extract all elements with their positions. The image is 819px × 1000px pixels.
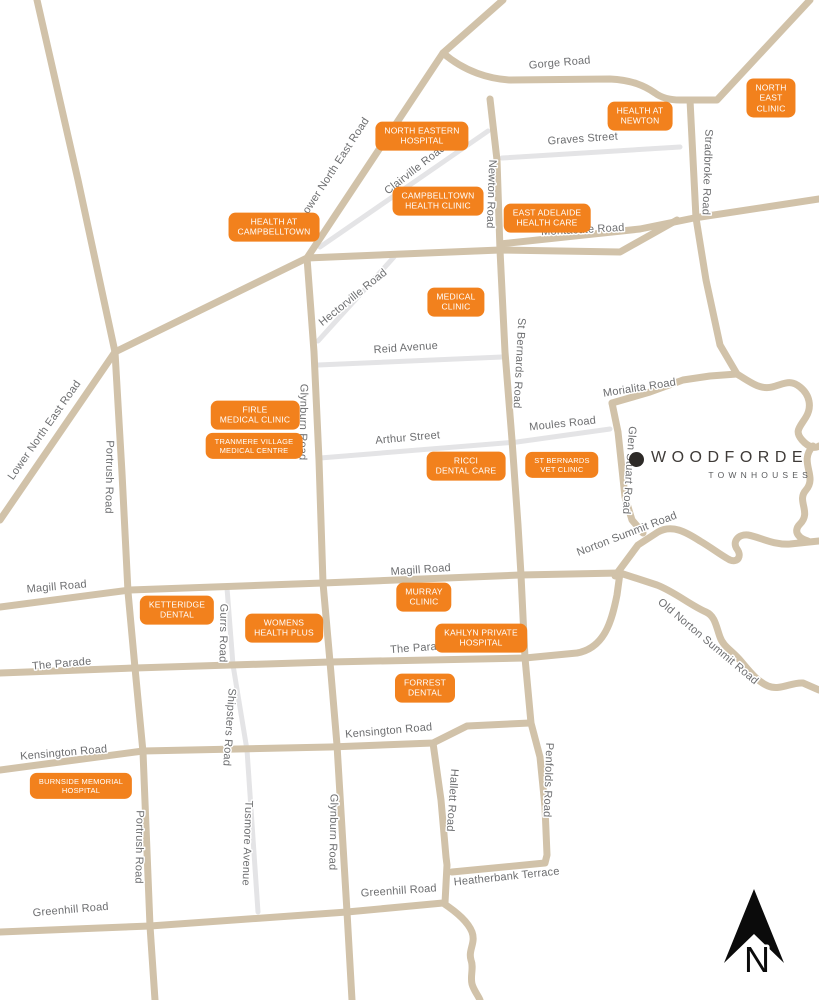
facility-medical-clinic: MEDICAL CLINIC — [427, 288, 484, 317]
facility-womens-health-plus: WOMENS HEALTH PLUS — [245, 614, 323, 643]
road-label-glynburn-road-lower: Glynburn Road — [326, 794, 339, 871]
road-label-greenhill-road-east: Greenhill Road — [360, 882, 437, 899]
road-label-kensington-road-east: Kensington Road — [345, 721, 433, 741]
woodforde-logo: WOODFORDE TOWNHOUSES — [629, 449, 808, 480]
logo-name: WOODFORDE — [651, 449, 808, 467]
road-label-gurrs-road: Gurrs Road — [216, 604, 229, 663]
facility-east-adelaide-health-care: EAST ADELAIDE HEALTH CARE — [504, 204, 591, 233]
logo-subtitle: TOWNHOUSES — [651, 470, 812, 480]
facility-firle-medical-clinic: FIRLE MEDICAL CLINIC — [211, 401, 300, 430]
facility-health-at-campbelltown: HEALTH AT CAMPBELLTOWN — [229, 213, 320, 242]
road-label-gorge-road: Gorge Road — [528, 54, 591, 71]
road-label-hectorville-road: Hectorville Road — [317, 267, 390, 329]
minor-road-graves — [502, 147, 680, 158]
road-label-reid-avenue: Reid Avenue — [373, 340, 438, 356]
facility-campbelltown-health-clinic: CAMPBELLTOWN HEALTH CLINIC — [393, 187, 484, 216]
road-magill — [0, 573, 620, 607]
facility-north-eastern-hospital: NORTH EASTERN HOSPITAL — [375, 122, 468, 151]
road-label-graves-street: Graves Street — [547, 131, 618, 148]
road-hills-squiggle-upper — [737, 374, 819, 447]
road-label-greenhill-road-west: Greenhill Road — [32, 901, 109, 920]
road-label-portrush-road-upper: Portrush Road — [102, 440, 115, 514]
road-label-arthur-street: Arthur Street — [375, 429, 441, 447]
road-label-stradbroke-road: Stradbroke Road — [699, 129, 714, 216]
road-label-norton-summit-road: Norton Summit Road — [575, 510, 679, 559]
locality-map: Gorge Road Graves Street Montacute Road … — [0, 0, 819, 1000]
facility-health-at-newton: HEALTH AT NEWTON — [608, 102, 673, 131]
road-label-hallett-road: Hallett Road — [444, 768, 460, 832]
facility-north-east-clinic: NORTH EAST CLINIC — [746, 78, 795, 117]
facility-forrest-dental: FORREST DENTAL — [395, 674, 455, 703]
north-arrow-letter: N — [744, 939, 770, 980]
road-label-penfolds-road: Penfolds Road — [541, 743, 556, 818]
logo-dot-icon — [629, 452, 644, 467]
road-greenhill — [0, 903, 480, 1000]
facility-tranmere-village-medical-centre: TRANMERE VILLAGE MEDICAL CENTRE — [206, 433, 303, 459]
road-label-newton-road: Newton Road — [484, 159, 498, 228]
road-label-tusmore-avenue: Tusmore Avenue — [240, 800, 255, 886]
north-arrow: N — [724, 889, 784, 980]
road-label-shipsters-road: Shipsters Road — [220, 688, 237, 767]
road-label-lower-north-east-road-lower: Lower North East Road — [6, 378, 84, 482]
facility-burnside-memorial-hospital: BURNSIDE MEMORIAL HOSPITAL — [30, 773, 132, 799]
minor-road-reid — [318, 357, 502, 365]
road-label-magill-road-west: Magill Road — [26, 578, 87, 595]
facility-ricci-dental-care: RICCI DENTAL CARE — [427, 452, 506, 481]
road-old-norton-summit — [620, 573, 819, 690]
facility-murray-clinic: MURRAY CLINIC — [396, 583, 451, 612]
road-norton-summit — [615, 529, 819, 576]
facility-kahlyn-private-hospital: KAHLYN PRIVATE HOSPITAL — [435, 624, 527, 653]
facility-st-bernards-vet-clinic: ST BERNARDS VET CLINIC — [525, 452, 598, 478]
facility-ketteridge-dental: KETTERIDGE DENTAL — [140, 596, 214, 625]
road-label-st-bernards-road: St Bernards Road — [511, 318, 528, 409]
road-label-lower-north-east-road-upper: Lower North East Road — [297, 115, 372, 221]
road-label-portrush-road-lower: Portrush Road — [132, 810, 145, 884]
